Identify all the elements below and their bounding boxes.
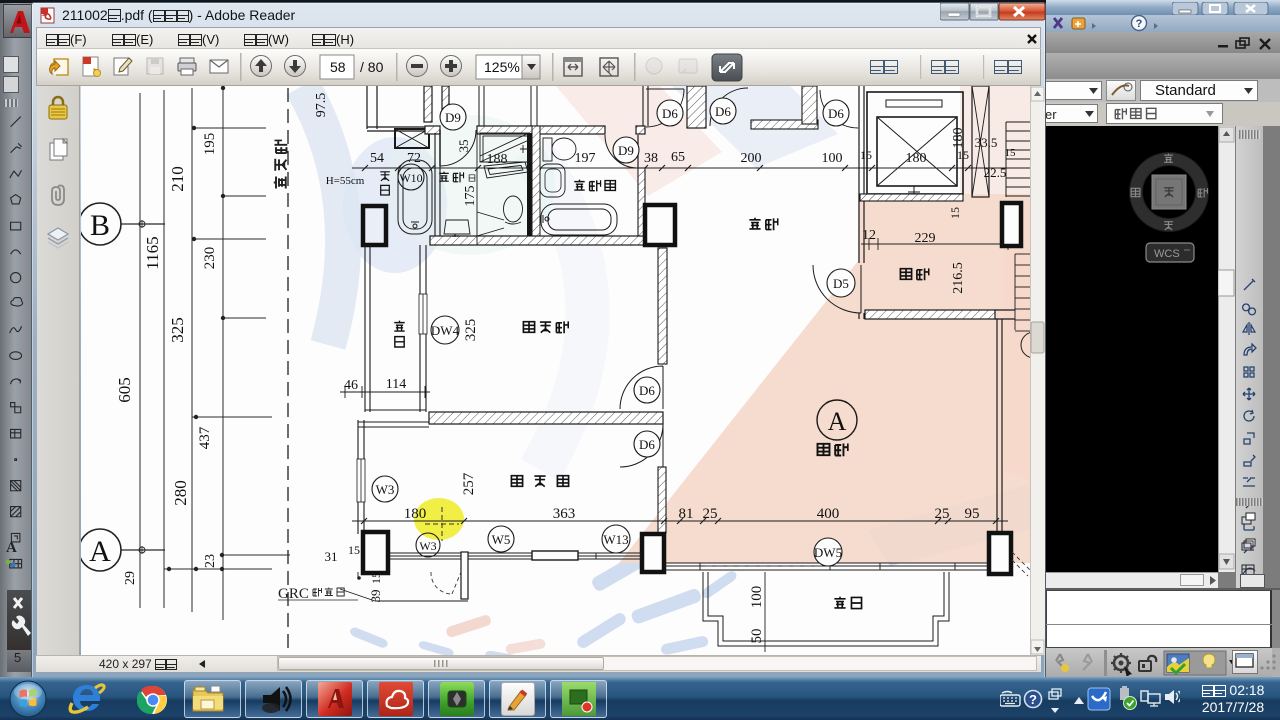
svg-text:39: 39 — [368, 590, 383, 603]
svg-text:15: 15 — [860, 148, 872, 162]
svg-text:180: 180 — [951, 128, 966, 149]
svg-text:D6: D6 — [639, 383, 655, 398]
svg-text:229: 229 — [915, 231, 936, 246]
svg-text:175: 175 — [463, 186, 478, 207]
svg-text:D6: D6 — [828, 106, 844, 121]
svg-text:WCS: WCS — [1154, 248, 1180, 260]
svg-text:114: 114 — [386, 377, 406, 392]
svg-text:W3: W3 — [419, 539, 436, 553]
svg-text:15: 15 — [369, 572, 383, 584]
svg-text:31: 31 — [325, 549, 338, 564]
svg-text:D6: D6 — [715, 104, 731, 119]
svg-text:D6: D6 — [662, 106, 678, 121]
svg-text:?: ? — [1029, 692, 1037, 707]
svg-text:100: 100 — [749, 586, 765, 609]
svg-text:A: A — [89, 535, 111, 568]
svg-text:363: 363 — [553, 506, 576, 522]
svg-text:D9: D9 — [445, 110, 461, 125]
svg-text:35: 35 — [456, 140, 471, 153]
svg-text:97.5: 97.5 — [314, 93, 329, 118]
svg-text:46: 46 — [344, 378, 358, 393]
svg-text:38: 38 — [644, 151, 658, 166]
svg-text:325: 325 — [463, 319, 479, 342]
svg-text:230: 230 — [202, 247, 218, 270]
svg-text:W3: W3 — [376, 482, 395, 497]
svg-text:81: 81 — [679, 506, 694, 522]
svg-text:54: 54 — [370, 151, 384, 166]
svg-text:B: B — [90, 209, 110, 242]
svg-text:W10: W10 — [399, 171, 422, 185]
svg-text:25: 25 — [703, 506, 718, 522]
svg-text:280: 280 — [171, 480, 190, 506]
svg-text:210: 210 — [168, 166, 187, 192]
svg-text:15: 15 — [348, 543, 360, 557]
svg-text:15: 15 — [948, 207, 962, 219]
svg-text:197: 197 — [575, 151, 596, 166]
svg-text:257: 257 — [461, 472, 477, 495]
svg-text:437: 437 — [197, 426, 213, 449]
svg-text:605: 605 — [115, 377, 134, 403]
svg-text:D9: D9 — [618, 143, 634, 158]
svg-text:D5: D5 — [833, 276, 849, 291]
svg-text:100: 100 — [822, 151, 843, 166]
svg-text:W13: W13 — [603, 532, 628, 547]
svg-text:1165: 1165 — [143, 236, 162, 269]
svg-text:23: 23 — [203, 554, 218, 568]
svg-text:W5: W5 — [492, 532, 511, 547]
svg-text:H=55cm: H=55cm — [326, 175, 365, 187]
svg-text:29: 29 — [123, 571, 138, 585]
svg-text:195: 195 — [202, 133, 218, 156]
svg-text:12: 12 — [862, 228, 876, 243]
svg-text:216.5: 216.5 — [951, 262, 966, 294]
svg-text:?: ? — [1136, 18, 1143, 30]
svg-text:180: 180 — [404, 506, 427, 522]
svg-text:DW5: DW5 — [814, 545, 842, 560]
svg-text:D6: D6 — [639, 437, 655, 452]
svg-text:200: 200 — [741, 151, 762, 166]
svg-text:A: A — [828, 407, 847, 436]
svg-text:33.5: 33.5 — [975, 135, 998, 150]
svg-text:22.5: 22.5 — [984, 165, 1007, 180]
svg-text:400: 400 — [817, 506, 840, 522]
svg-text:95: 95 — [965, 506, 980, 522]
svg-text:DW4: DW4 — [431, 323, 460, 338]
svg-text:25: 25 — [935, 506, 950, 522]
svg-text:65: 65 — [671, 150, 685, 165]
svg-text:50: 50 — [749, 629, 765, 644]
svg-text:325: 325 — [168, 317, 187, 343]
